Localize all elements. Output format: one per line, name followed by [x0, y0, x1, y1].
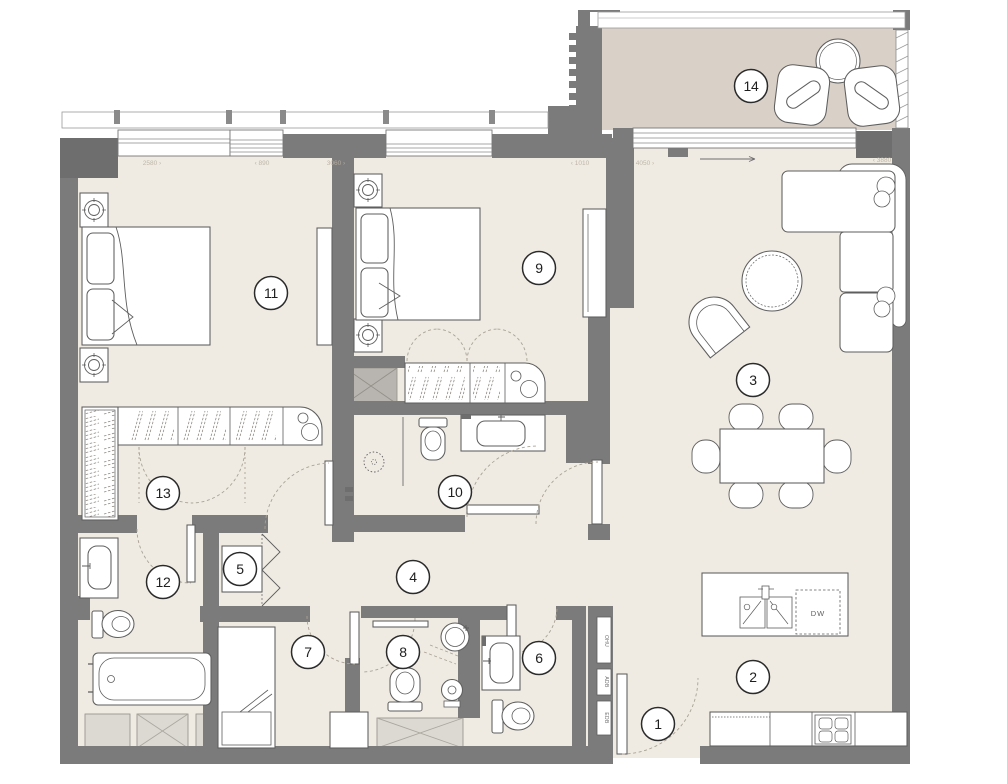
shaft-plain	[85, 714, 130, 748]
wall-closet-stub	[332, 356, 405, 368]
dimension-label: 2580 ›	[143, 160, 161, 167]
room-number-5: 5	[224, 553, 257, 586]
bedroom9-wardrobe	[583, 209, 606, 317]
utility-label-ohu: OHU	[603, 635, 609, 647]
bedroom9-nightstand-top	[354, 174, 382, 207]
wall-room8-north	[361, 606, 460, 618]
room-number-text: 3	[749, 372, 757, 388]
living-room-coffee-table	[742, 251, 802, 311]
wall-bath10-south	[332, 515, 465, 532]
bathroom12-bathtub	[88, 653, 211, 705]
window-bedroom9	[386, 130, 492, 156]
window-outer-band	[62, 110, 548, 128]
bathroom6-vanity	[482, 636, 520, 690]
room-number-text: 11	[264, 285, 278, 301]
room-number-13: 13	[147, 477, 180, 510]
wall-corner-topleft	[60, 138, 118, 178]
room-number-text: 14	[744, 78, 759, 94]
bathroom10-toilet	[419, 418, 447, 460]
bedroom9-bed	[356, 208, 480, 320]
room-number-1: 1	[642, 708, 675, 741]
room-number-7: 7	[292, 636, 325, 669]
floor-plan-page: DW	[0, 0, 1007, 784]
dimension-label: ‹ 1010	[571, 160, 590, 167]
balcony-chair-left	[773, 63, 832, 127]
bathroom10-vanity	[461, 415, 545, 451]
room-number-14: 14	[735, 70, 768, 103]
wall-bed9-living	[606, 138, 634, 308]
room-number-12: 12	[147, 566, 180, 599]
wall-bath10-east	[566, 401, 590, 463]
cooktop	[815, 715, 851, 744]
bathroom8-towel-rail	[373, 621, 428, 627]
room-number-text: 8	[399, 644, 407, 660]
room-number-8: 8	[387, 636, 420, 669]
room-number-9: 9	[523, 252, 556, 285]
utility-label-adb: ADB	[603, 676, 609, 688]
room-number-text: 13	[156, 485, 171, 501]
wall-hall-dining	[588, 300, 610, 464]
bathroom12-toilet	[92, 611, 134, 639]
balcony-railing	[598, 12, 905, 28]
shaft-x-mid	[377, 718, 463, 748]
bathroom12-vanity	[80, 538, 118, 598]
wall-balcony-left	[576, 26, 602, 138]
wall-hall-dining-stub	[588, 524, 610, 540]
wall-top-pier	[283, 134, 386, 158]
room-number-text: 4	[409, 569, 417, 585]
room-number-text: 2	[749, 669, 757, 685]
room-number-3: 3	[737, 364, 770, 397]
bedroom11-bed	[82, 227, 210, 345]
wall-room7-north	[200, 606, 310, 622]
wall-bath6-north-left	[460, 606, 507, 620]
kitchen-island: DW	[702, 573, 848, 636]
wall-left	[60, 138, 78, 764]
room-number-text: 5	[236, 561, 244, 577]
room-number-11: 11	[255, 277, 288, 310]
room7-cabinet	[330, 712, 368, 748]
dimension-label: 4050 ›	[636, 160, 654, 167]
kitchen-counter	[710, 712, 907, 746]
room-number-text: 7	[304, 644, 312, 660]
wall-room8-east	[458, 606, 480, 718]
dining-table	[720, 429, 824, 483]
room-number-text: 6	[535, 650, 543, 666]
room7-bed	[218, 627, 275, 748]
wall-bath12-east	[203, 515, 219, 750]
balcony-chair-right	[843, 64, 902, 128]
window-bedroom11-side	[230, 130, 283, 156]
wall-balcony-base	[548, 106, 580, 158]
wall-slider-stub	[613, 128, 633, 154]
bedroom11-nightstand-top	[80, 193, 108, 227]
dimension-label: 3060 ›	[327, 160, 345, 167]
room-number-6: 6	[523, 642, 556, 675]
shaft-x-left	[137, 714, 188, 748]
room-number-text: 1	[654, 716, 662, 732]
dimension-label: ‹ 3880	[873, 157, 892, 164]
bathroom8-toilet	[388, 668, 422, 711]
utility-label-edb: EDB	[603, 712, 609, 724]
dishwasher-label: DW	[811, 609, 826, 618]
bathroom8-pedestal-basin	[442, 680, 463, 708]
window-bedroom11	[118, 130, 230, 156]
wall-bottom-left	[60, 746, 613, 764]
floor-plan: DW	[0, 0, 1007, 784]
wall-bath6-east	[572, 606, 586, 746]
room-number-10: 10	[439, 476, 472, 509]
room-number-2: 2	[737, 661, 770, 694]
room-number-text: 9	[535, 260, 543, 276]
room-number-text: 12	[156, 574, 171, 590]
wall-bottom-right	[700, 746, 910, 764]
room-number-4: 4	[397, 561, 430, 594]
wall-bed11-bed9	[332, 156, 354, 542]
dimension-label: ‹ 890	[255, 160, 270, 167]
bedroom11-wall-unit	[317, 228, 332, 345]
bedroom11-nightstand-bottom	[80, 348, 108, 382]
room-number-text: 10	[448, 484, 463, 500]
bedroom9-nightstand-bottom	[354, 319, 382, 352]
bathroom8-round-sink	[441, 623, 469, 651]
wall-pier-toilet12	[78, 596, 90, 620]
balcony-wall-teeth	[569, 33, 576, 124]
